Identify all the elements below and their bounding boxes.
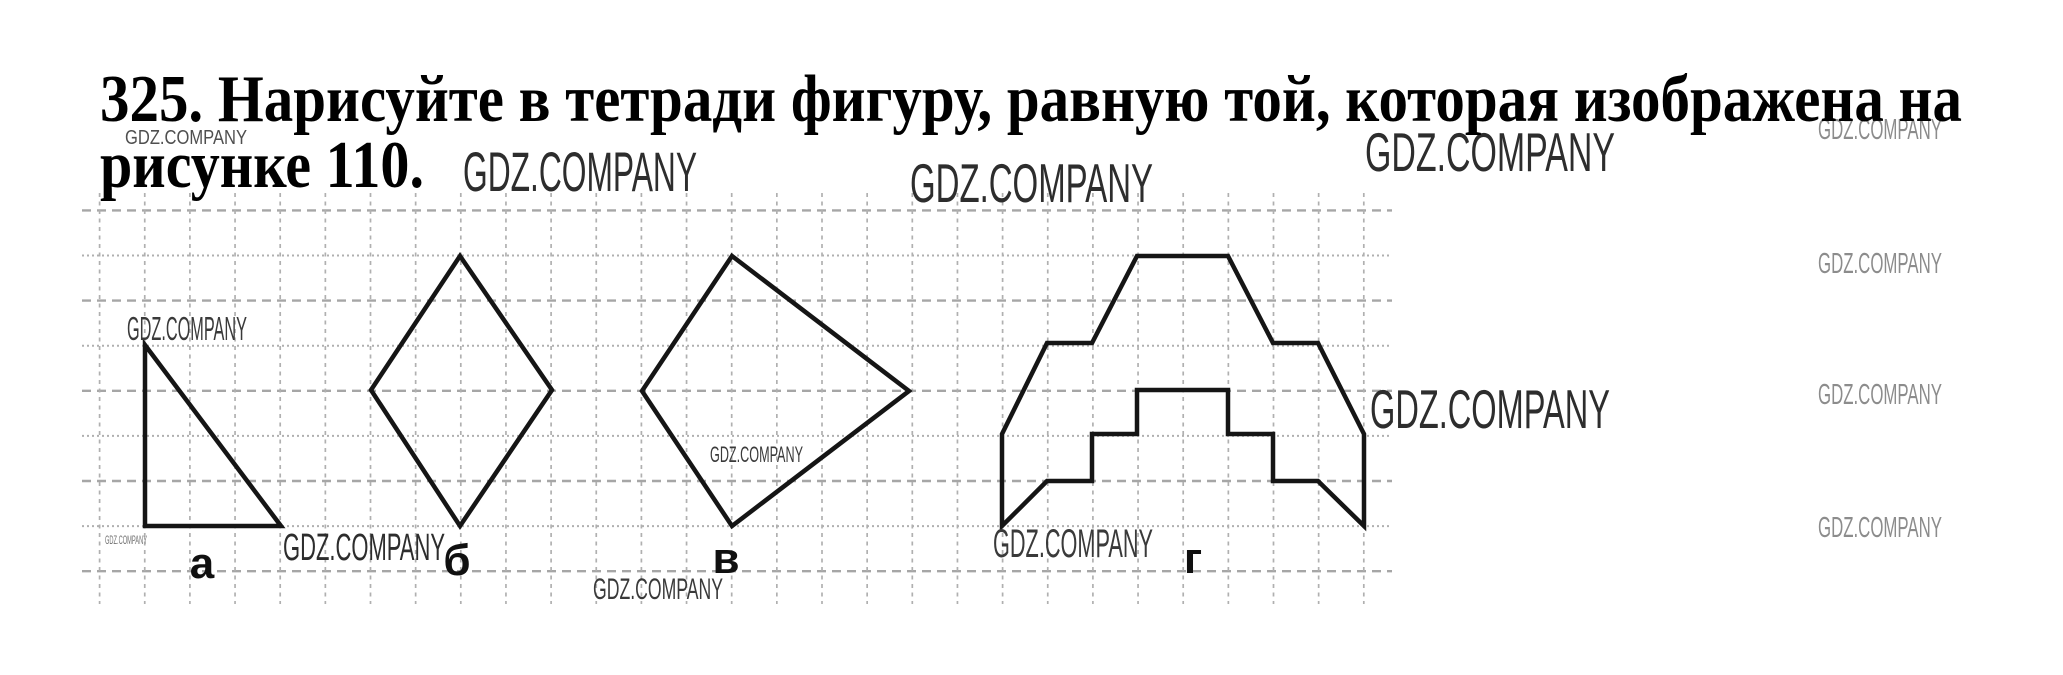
figure-g-label: г: [1184, 534, 1202, 583]
task-title-line1: 325. Нарисуйте в тетради фигуру, равную …: [100, 62, 1962, 136]
watermark-text: GDZ.COMPANY: [1818, 512, 1942, 544]
watermark-text: GDZ.COMPANY: [463, 140, 697, 203]
watermark-text: GDZ.COMPANY: [1818, 248, 1942, 280]
watermark-text: GDZ.COMPANY: [283, 527, 445, 569]
figure-a-label: а: [190, 539, 215, 588]
task-title-line2: рисунке 110.: [100, 128, 424, 202]
watermark-text: GDZ.COMPANY: [1370, 378, 1610, 440]
watermark-text: GDZ.COMPANY: [993, 522, 1153, 566]
watermark-text: GDZ.COMPANY: [127, 310, 247, 347]
watermark-text: GDZ.COMPANY: [105, 533, 147, 547]
figure-a-shape: [145, 345, 281, 526]
figure-110-scene: абвг GDZ.COMPANYGDZ.COMPANYGDZ.COMPANYGD…: [0, 0, 2063, 675]
watermark-text: GDZ.COMPANY: [1818, 379, 1942, 411]
figure-b-label: б: [443, 536, 470, 585]
watermark-text: GDZ.COMPANY: [910, 152, 1153, 214]
watermark-text: GDZ.COMPANY: [710, 442, 803, 467]
watermark-text: GDZ.COMPANY: [593, 573, 723, 606]
textbook-scan-page: абвг GDZ.COMPANYGDZ.COMPANYGDZ.COMPANYGD…: [0, 0, 2063, 675]
